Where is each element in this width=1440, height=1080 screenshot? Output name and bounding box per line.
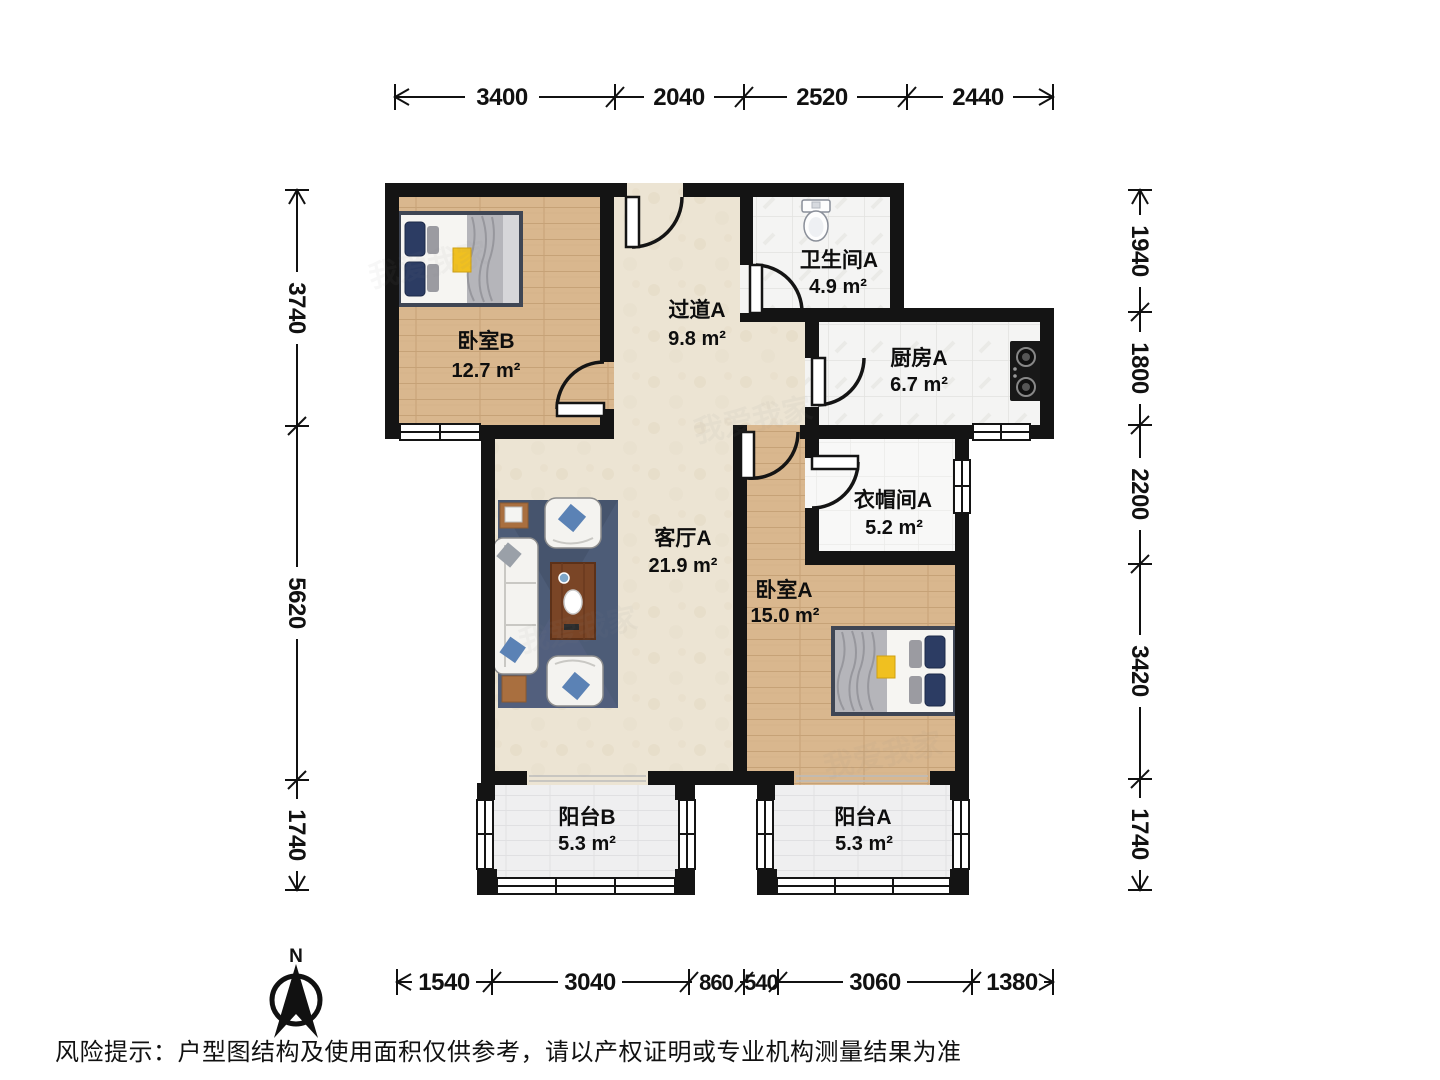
svg-text:15.0 m²: 15.0 m²	[751, 605, 820, 627]
svg-text:3740: 3740	[283, 282, 310, 334]
window-balcony-b-right	[679, 800, 695, 869]
svg-text:卫生间A: 卫生间A	[800, 248, 878, 272]
svg-text:1540: 1540	[418, 969, 470, 996]
svg-text:厨房A: 厨房A	[890, 346, 947, 370]
window-balcony-a-right	[953, 800, 969, 869]
svg-text:过道A: 过道A	[668, 298, 725, 322]
svg-text:2040: 2040	[653, 84, 705, 111]
dim-right: 1940 1800 2200 3420 1740	[1126, 190, 1154, 890]
svg-text:2520: 2520	[796, 84, 848, 111]
svg-text:12.7 m²: 12.7 m²	[452, 360, 521, 382]
svg-text:1740: 1740	[1126, 808, 1153, 860]
compass-arrow-icon	[274, 964, 318, 1038]
svg-text:3040: 3040	[564, 969, 616, 996]
window-balcony-b-bottom	[497, 878, 675, 894]
armchair	[545, 498, 601, 548]
window-bedroom-b	[400, 424, 480, 440]
compass-north-label: N	[289, 946, 303, 967]
svg-text:客厅A: 客厅A	[654, 526, 711, 550]
svg-text:3420: 3420	[1126, 645, 1153, 697]
svg-text:5.3 m²: 5.3 m²	[558, 833, 616, 855]
svg-text:2440: 2440	[952, 84, 1004, 111]
svg-text:1740: 1740	[283, 809, 310, 861]
side-table	[502, 676, 526, 702]
svg-text:1800: 1800	[1126, 342, 1153, 394]
svg-text:1940: 1940	[1126, 225, 1153, 277]
svg-text:540: 540	[744, 970, 778, 995]
svg-text:1380: 1380	[986, 969, 1038, 996]
svg-text:5.2 m²: 5.2 m²	[865, 517, 923, 539]
window-balcony-a-bottom	[777, 878, 950, 894]
living-room-set	[494, 498, 618, 708]
svg-text:6.7 m²: 6.7 m²	[890, 374, 948, 396]
svg-text:3400: 3400	[476, 84, 528, 111]
svg-text:4.9 m²: 4.9 m²	[809, 276, 867, 298]
armchair	[547, 656, 603, 706]
dim-bottom: 1540 3040 860 540 3060 1380	[397, 968, 1053, 996]
svg-text:阳台B: 阳台B	[558, 805, 615, 829]
window-cloakroom	[954, 460, 970, 513]
balcony-b-floor	[493, 785, 679, 878]
window-kitchen	[973, 424, 1030, 440]
svg-text:2200: 2200	[1126, 468, 1153, 520]
dim-left: 3740 5620 1740	[283, 190, 311, 890]
svg-text:860: 860	[699, 970, 733, 995]
bed-bedroom-a	[831, 626, 957, 716]
balcony-b-threshold	[523, 771, 653, 785]
stove	[1010, 341, 1042, 401]
compass: N	[272, 946, 320, 1038]
svg-text:5.3 m²: 5.3 m²	[835, 833, 893, 855]
balcony-a-floor	[771, 785, 955, 878]
floorplan-page: 我爱我家 我爱我家 我爱我家 我爱我家 卧室B 12.7 m² 过道A 9.8 …	[0, 0, 1440, 1080]
window-balcony-a-left	[757, 800, 773, 869]
toilet	[802, 200, 830, 241]
floorplan-drawing: 我爱我家 我爱我家 我爱我家 我爱我家 卧室B 12.7 m² 过道A 9.8 …	[0, 0, 1440, 1080]
svg-text:5620: 5620	[283, 577, 310, 629]
window-balcony-b-left	[477, 800, 493, 869]
svg-text:9.8 m²: 9.8 m²	[668, 328, 726, 350]
svg-text:21.9 m²: 21.9 m²	[649, 555, 718, 577]
svg-text:卧室A: 卧室A	[755, 578, 812, 602]
risk-disclaimer: 风险提示：户型图结构及使用面积仅供参考，请以产权证明或专业机构测量结果为准	[55, 1032, 1395, 1067]
svg-text:衣帽间A: 衣帽间A	[854, 488, 932, 512]
dim-top: 3400 2040 2520 2440	[395, 83, 1053, 111]
svg-text:3060: 3060	[849, 969, 901, 996]
svg-text:阳台A: 阳台A	[834, 805, 891, 829]
svg-text:卧室B: 卧室B	[457, 329, 514, 353]
